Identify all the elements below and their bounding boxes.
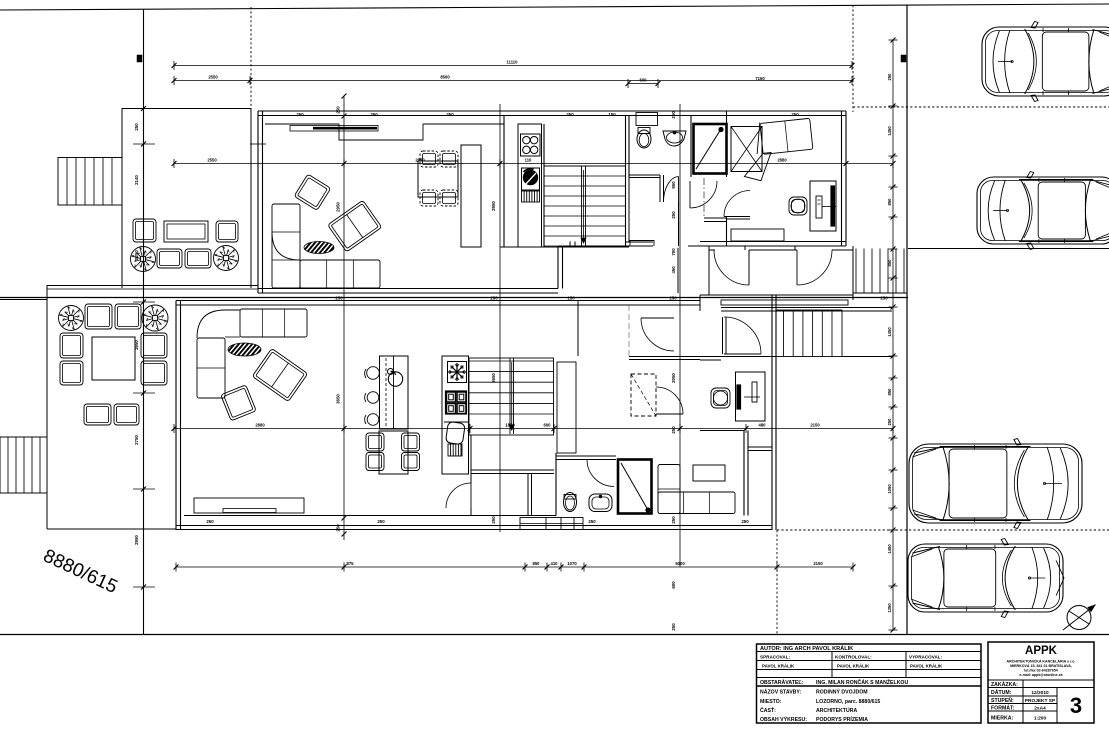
svg-text:1:200: 1:200	[1034, 716, 1047, 722]
svg-text:RODINNÝ DVOJDOM: RODINNÝ DVOJDOM	[816, 689, 868, 696]
svg-text:OBSTARÁVATEĽ:: OBSTARÁVATEĽ:	[760, 679, 803, 686]
svg-text:PAVOL KRÁLIK: PAVOL KRÁLIK	[910, 663, 943, 668]
svg-text:2750: 2750	[134, 435, 139, 445]
svg-text:250: 250	[370, 112, 378, 117]
svg-text:600: 600	[671, 581, 676, 589]
svg-text:2880: 2880	[255, 423, 265, 428]
svg-text:1070: 1070	[567, 561, 577, 566]
svg-text:NÁZOV STAVBY:: NÁZOV STAVBY:	[760, 689, 801, 696]
svg-text:1350: 1350	[887, 603, 892, 613]
svg-text:ING. MILAN RONČÁK S MANŽELKOU: ING. MILAN RONČÁK S MANŽELKOU	[816, 678, 908, 686]
svg-text:2150: 2150	[810, 423, 820, 428]
svg-text:7160: 7160	[755, 76, 765, 81]
svg-text:850: 850	[887, 198, 892, 206]
svg-text:850: 850	[887, 388, 892, 396]
svg-text:2550: 2550	[207, 158, 217, 163]
svg-text:2650: 2650	[491, 373, 496, 383]
svg-text:VYPRACOVAL:: VYPRACOVAL:	[909, 654, 943, 659]
svg-text:OBSAH VÝKRESU:: OBSAH VÝKRESU:	[760, 716, 807, 723]
svg-text:1450: 1450	[887, 327, 892, 337]
svg-text:2880: 2880	[777, 158, 787, 163]
svg-text:250: 250	[206, 519, 214, 524]
svg-text:250: 250	[669, 296, 677, 301]
svg-text:PAVOL KRÁLIK: PAVOL KRÁLIK	[762, 663, 795, 668]
svg-text:8560: 8560	[440, 75, 450, 80]
svg-text:150: 150	[567, 296, 575, 301]
svg-text:ZAKÁZKA:: ZAKÁZKA:	[991, 681, 1018, 688]
svg-text:250: 250	[336, 106, 341, 114]
svg-text:AUTOR: ING ARCH PAVOL KRÁLIK: AUTOR: ING ARCH PAVOL KRÁLIK	[760, 645, 853, 652]
svg-text:e-mail: appk@stonline.sk: e-mail: appk@stonline.sk	[1019, 673, 1062, 677]
svg-text:250: 250	[377, 519, 385, 524]
svg-text:tel./fax 02-64287654: tel./fax 02-64287654	[1024, 669, 1058, 673]
svg-text:250: 250	[671, 623, 676, 631]
svg-text:2950: 2950	[336, 202, 341, 212]
svg-text:950: 950	[671, 181, 676, 189]
svg-text:STUPEŇ:: STUPEŇ:	[991, 696, 1014, 704]
svg-text:250: 250	[671, 516, 676, 524]
svg-text:PAVOL KRÁLIK: PAVOL KRÁLIK	[837, 663, 870, 668]
svg-text:DÁTUM:: DÁTUM:	[991, 689, 1012, 696]
svg-text:MIESTO:: MIESTO:	[760, 699, 782, 705]
svg-text:250: 250	[887, 73, 892, 81]
svg-text:FORMÁT:: FORMÁT:	[991, 704, 1015, 711]
svg-text:APPK: APPK	[1025, 645, 1058, 657]
svg-text:LOZORNO, parc. 8880/615: LOZORNO, parc. 8880/615	[816, 699, 880, 705]
svg-text:480: 480	[759, 423, 767, 428]
svg-text:250: 250	[491, 516, 496, 524]
svg-text:2550: 2550	[208, 75, 218, 80]
svg-text:ČASŤ:: ČASŤ:	[760, 706, 776, 714]
svg-text:250: 250	[887, 418, 892, 426]
svg-text:2050: 2050	[671, 373, 676, 383]
svg-text:410: 410	[551, 561, 559, 566]
svg-text:250: 250	[134, 123, 139, 131]
svg-text:250: 250	[296, 112, 304, 117]
svg-text:250: 250	[566, 112, 574, 117]
svg-text:250: 250	[490, 296, 498, 301]
svg-text:1450: 1450	[887, 126, 892, 136]
svg-text:PODORYS PRÍZEMIA: PODORYS PRÍZEMIA	[816, 715, 868, 723]
svg-text:PROJEKT SP: PROJEKT SP	[1025, 698, 1056, 704]
svg-text:ARCHITEKTONICKÁ KANCELÁRIA s r: ARCHITEKTONICKÁ KANCELÁRIA s r.o.	[1007, 659, 1076, 664]
svg-text:110: 110	[525, 158, 532, 163]
svg-text:2950: 2950	[134, 535, 139, 545]
svg-text:2xA4: 2xA4	[1034, 705, 1046, 711]
svg-text:250: 250	[671, 211, 676, 219]
svg-text:850: 850	[533, 561, 541, 566]
svg-text:250: 250	[791, 112, 799, 117]
svg-text:12/2010: 12/2010	[1031, 690, 1049, 696]
svg-text:11110: 11110	[507, 60, 519, 65]
svg-text:150: 150	[608, 112, 616, 117]
svg-text:3: 3	[1070, 693, 1082, 718]
svg-text:3650: 3650	[336, 394, 341, 404]
svg-text:1050: 1050	[887, 484, 892, 494]
svg-text:700: 700	[671, 248, 676, 256]
svg-text:MIERKA:: MIERKA:	[991, 716, 1013, 722]
svg-text:2140: 2140	[134, 175, 139, 185]
svg-text:250: 250	[741, 519, 749, 524]
svg-text:450: 450	[671, 266, 676, 274]
svg-text:ARCHITEKTÚRA: ARCHITEKTÚRA	[816, 707, 857, 714]
svg-text:875: 875	[347, 561, 355, 566]
svg-text:1450: 1450	[887, 544, 892, 554]
svg-text:KONTROLOVAL:: KONTROLOVAL:	[835, 654, 872, 659]
svg-text:MIERKOVÁ 15, 841 01 BRATISLAVA: MIERKOVÁ 15, 841 01 BRATISLAVA,	[1010, 663, 1072, 668]
svg-text:600: 600	[640, 78, 648, 83]
svg-text:250: 250	[588, 519, 596, 524]
svg-text:250: 250	[671, 426, 676, 434]
svg-text:250: 250	[880, 296, 888, 301]
svg-text:2150: 2150	[813, 561, 823, 566]
svg-text:250: 250	[335, 296, 343, 301]
svg-text:SPRACOVAL:: SPRACOVAL:	[760, 654, 790, 659]
svg-text:250: 250	[446, 112, 454, 117]
svg-text:600: 600	[544, 423, 552, 428]
svg-text:2950: 2950	[491, 201, 496, 211]
svg-text:250: 250	[671, 111, 676, 119]
